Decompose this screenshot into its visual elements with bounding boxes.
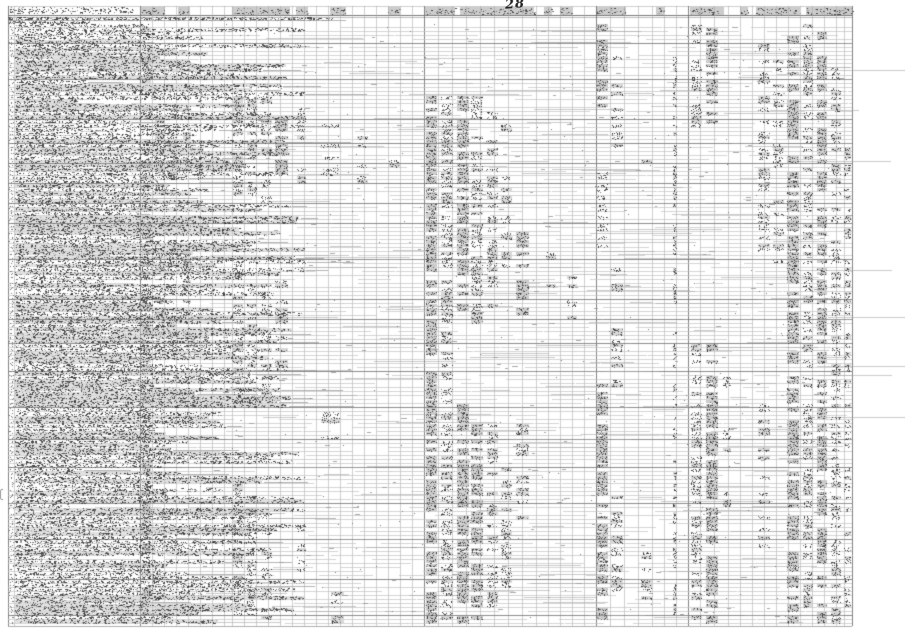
ledger-table-scan bbox=[0, 0, 905, 640]
scanned-document-page: 28 bbox=[0, 0, 905, 640]
page-number-handwritten: 28 bbox=[505, 0, 526, 13]
